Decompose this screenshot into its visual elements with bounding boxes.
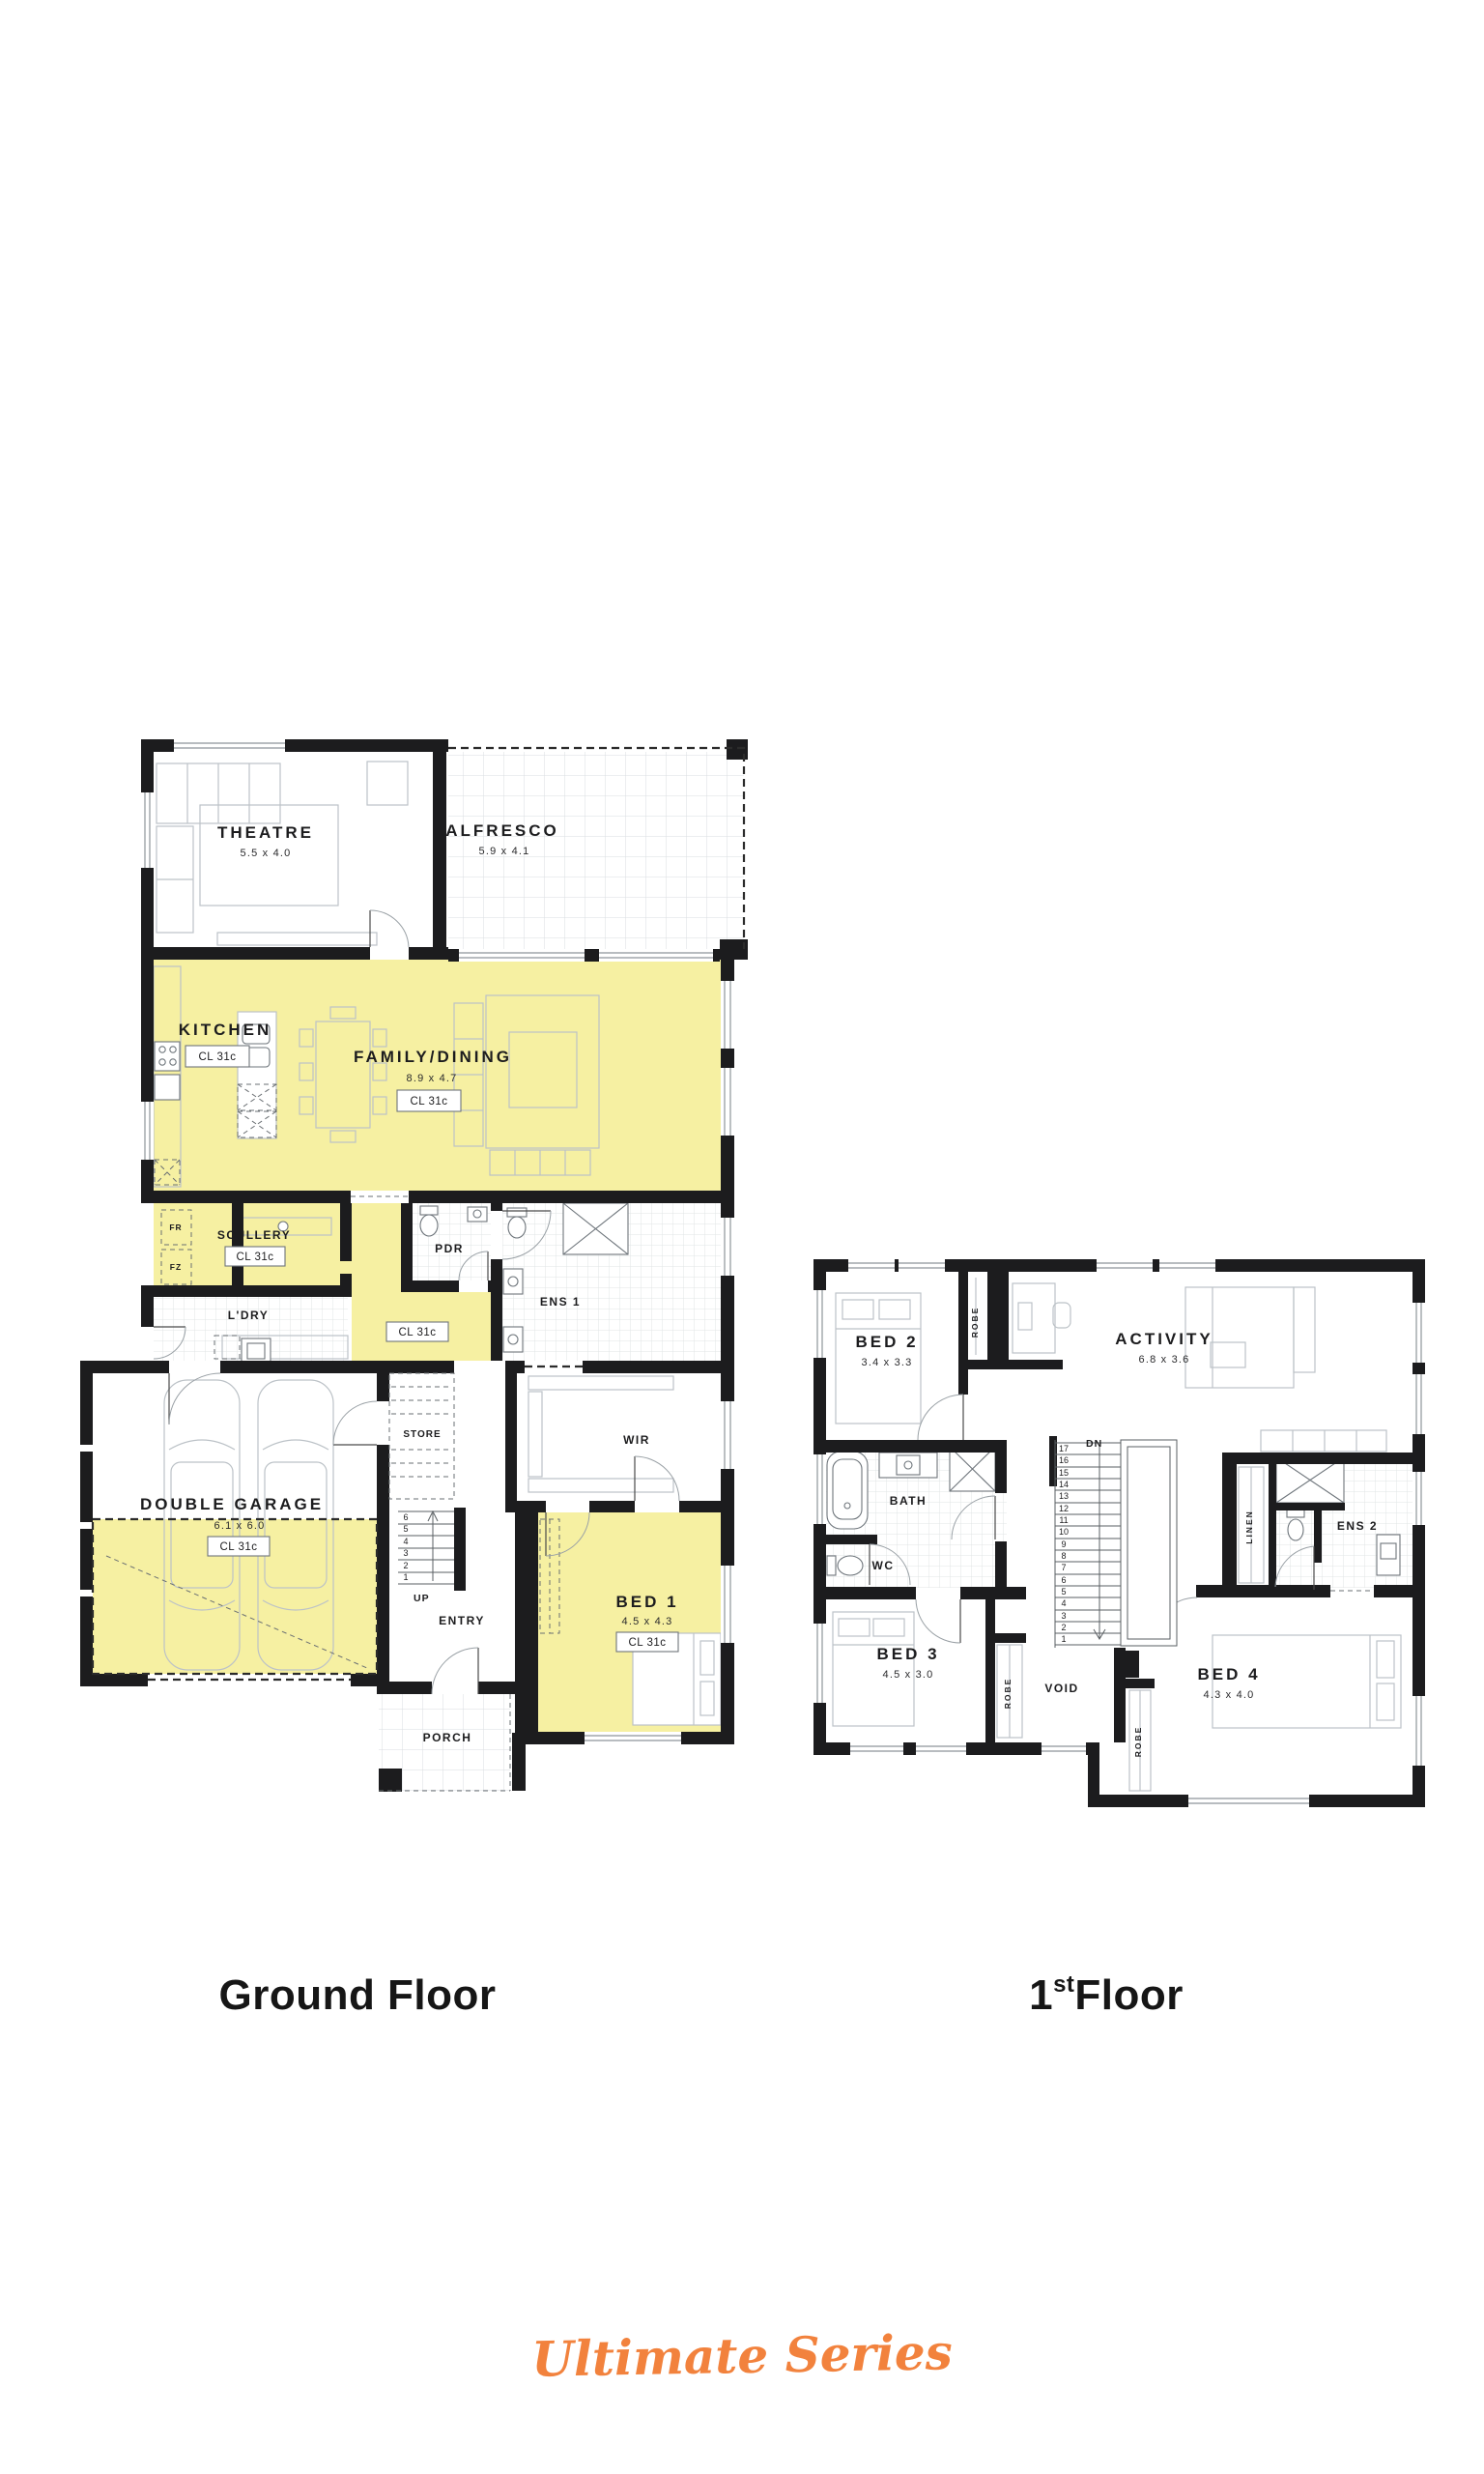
void-label: VOID [1044,1682,1078,1695]
brand-logo: Ultimate Series [0,2315,1484,2398]
first-floor-caption: 1stFloor [899,1971,1314,2020]
ground-floor-caption: Ground Floor [145,1971,570,2020]
stair-number: 12 [1059,1504,1069,1513]
stair-number: 16 [1059,1455,1069,1465]
stair-number: 8 [1061,1551,1066,1561]
ens1-label: ENS 1 [540,1295,581,1309]
stair-number: 11 [1059,1515,1068,1525]
bed1-label: BED 1 [615,1593,678,1611]
family-dining-dim: 8.9 x 4.7 [407,1073,458,1084]
garage-dim: 6.1 x 6.0 [214,1520,266,1532]
theatre-dim: 5.5 x 4.0 [241,848,292,859]
bed1-badge: CL 31c [628,1637,666,1649]
first-floor-plan: DN 17 16 15 14 13 12 11 10 9 8 7 6 5 4 3… [812,1247,1440,1817]
first-floor-number: 1 [1029,1971,1053,2019]
stair-number: 4 [403,1537,408,1546]
first-floor-word: Floor [1074,1971,1183,2019]
floorplan-page: 6 5 4 3 2 1 UP THEATRE 5.5 x 4.0 ALFRESC… [0,0,1484,2474]
stair-number: 6 [1061,1575,1066,1585]
stair-number: 3 [403,1548,408,1558]
bed2-dim: 3.4 x 3.3 [862,1357,913,1368]
robe-bed2-label: ROBE [970,1307,980,1338]
alfresco-dim: 5.9 x 4.1 [479,846,530,857]
robe-bed4-label: ROBE [1133,1726,1143,1758]
stair-number: 13 [1059,1491,1069,1501]
wc-label: WC [872,1559,895,1572]
garage-badge: CL 31c [219,1541,257,1553]
porch-label: PORCH [423,1731,472,1744]
stair-number: 5 [403,1524,408,1534]
stair-number: 2 [403,1561,408,1570]
stair-number: 7 [1061,1563,1066,1572]
stair-number: 14 [1059,1480,1069,1489]
robe-bed3-label: ROBE [1003,1678,1013,1710]
stair-number: 17 [1059,1444,1069,1453]
stair-number: 15 [1059,1468,1069,1478]
stair-number: 6 [403,1512,408,1522]
stairs-down-label: DN [1086,1438,1102,1450]
alfresco-label: ALFRESCO [445,821,559,840]
pdr-label: PDR [435,1242,464,1255]
scullery-badge: CL 31c [236,1251,273,1263]
activity-dim: 6.8 x 3.6 [1139,1354,1190,1366]
family-dining-badge: CL 31c [410,1096,447,1108]
laundry-label: L'DRY [228,1309,270,1322]
family-dining-label: FAMILY/DINING [354,1048,512,1066]
bed4-label: BED 4 [1197,1665,1260,1683]
entry-label: ENTRY [439,1614,485,1627]
stair-number: 9 [1061,1539,1066,1549]
ground-floor-plan: 6 5 4 3 2 1 UP THEATRE 5.5 x 4.0 ALFRESC… [77,734,754,1798]
stair-number: 2 [1061,1623,1066,1632]
staircase-down: DN 17 16 15 14 13 12 11 10 9 8 7 6 5 4 3… [1055,1438,1177,1648]
kitchen-badge: CL 31c [198,1051,236,1063]
first-floor-ordinal: st [1053,1971,1074,1998]
theatre-label: THEATRE [217,823,314,842]
bed3-dim: 4.5 x 3.0 [883,1669,934,1681]
ens2-label: ENS 2 [1337,1519,1378,1533]
freezer-label: FZ [170,1262,182,1272]
wir-label: WIR [623,1433,650,1447]
activity-label: ACTIVITY [1115,1330,1213,1348]
bath-label: BATH [890,1494,927,1508]
stair-number: 3 [1061,1611,1066,1621]
stair-number: 10 [1059,1527,1069,1537]
bed1-dim: 4.5 x 4.3 [622,1616,673,1627]
bed2-label: BED 2 [855,1333,918,1351]
garage-label: DOUBLE GARAGE [140,1495,324,1513]
staircase-up: 6 5 4 3 2 1 UP [398,1511,454,1604]
stairs-up-label: UP [414,1593,430,1604]
linen-label: LINEN [1244,1510,1254,1544]
stair-number: 4 [1061,1598,1066,1608]
kitchen-label: KITCHEN [179,1021,272,1039]
fridge-label: FR [169,1223,182,1232]
stair-number: 1 [403,1572,408,1582]
bed4-dim: 4.3 x 4.0 [1204,1689,1255,1701]
stair-number: 5 [1061,1587,1066,1597]
hall-badge: CL 31c [398,1327,436,1338]
scullery-label: SCULLERY [217,1228,291,1242]
store-label: STORE [403,1429,441,1440]
bed3-label: BED 3 [876,1645,939,1663]
stair-number: 1 [1061,1634,1066,1644]
